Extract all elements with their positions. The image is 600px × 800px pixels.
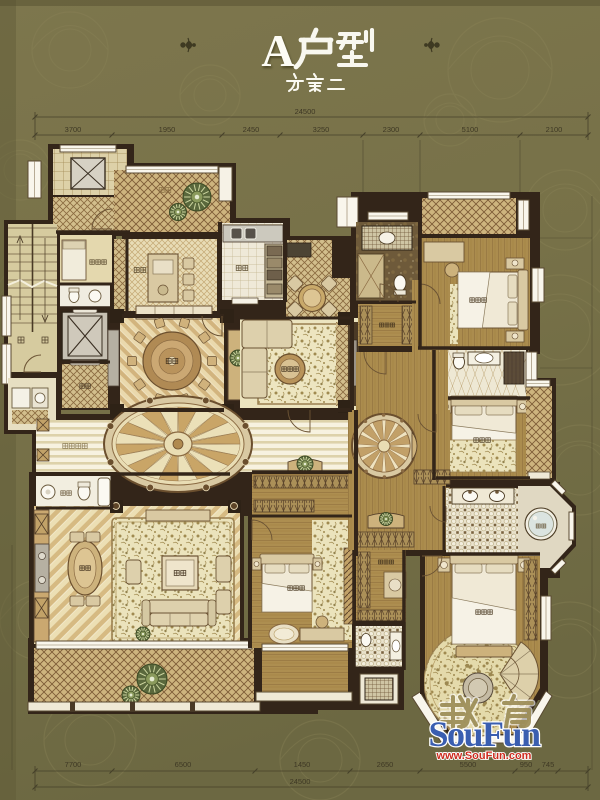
svg-text:1450: 1450 [294,760,311,769]
svg-text:SouFun: SouFun [428,714,541,754]
svg-text:www.SouFun.com: www.SouFun.com [436,750,532,762]
svg-text:745: 745 [542,760,555,769]
svg-text:1950: 1950 [159,125,176,134]
svg-text:3700: 3700 [65,125,82,134]
svg-text:2300: 2300 [383,125,400,134]
svg-text:24500: 24500 [295,107,316,116]
svg-text:2450: 2450 [243,125,260,134]
svg-text:5100: 5100 [462,125,479,134]
svg-text:3250: 3250 [313,125,330,134]
svg-text:6500: 6500 [175,760,192,769]
svg-text:2650: 2650 [377,760,394,769]
svg-text:24500: 24500 [290,777,311,786]
svg-text:2100: 2100 [546,125,563,134]
svg-text:A: A [261,25,294,76]
svg-text:7700: 7700 [65,760,82,769]
